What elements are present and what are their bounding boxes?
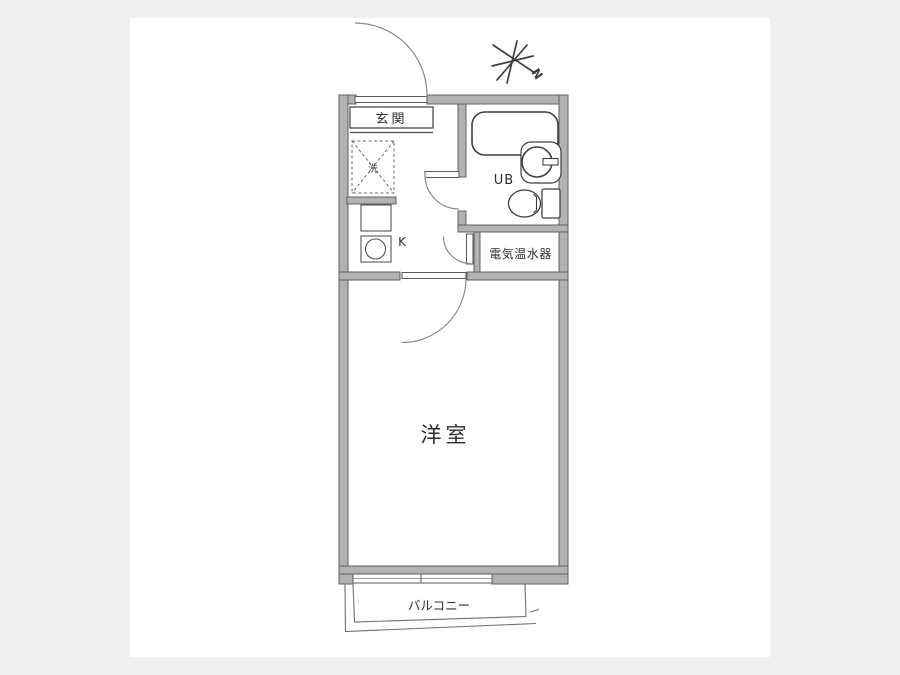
water-heater-label: 電気温水器 (478, 245, 563, 261)
entrance-threshold (355, 97, 427, 103)
wall-room-divider-right (467, 272, 568, 280)
sliding-window (353, 574, 492, 583)
faucet-icon (543, 159, 558, 166)
main-room-door-arc (402, 279, 466, 343)
toilet-bowl-icon (509, 190, 541, 217)
entrance-door-arc (355, 23, 427, 95)
toilet-tank-icon (542, 189, 560, 218)
wall-bottom-corner-right (492, 574, 568, 584)
wall-left (339, 95, 348, 583)
balcony-label: バルコニー (399, 596, 479, 613)
floor-plan-linework (0, 0, 900, 675)
door-swing-arcs (355, 23, 471, 343)
heater-door-leaf (467, 234, 474, 264)
wall-ub-divider-upper (458, 104, 466, 177)
kitchen-label: K (394, 235, 410, 249)
wall-ub-bottom (458, 225, 568, 232)
wall-bottom-corner-left (339, 574, 353, 584)
kitchen-fixtures (361, 205, 391, 262)
ub-door-arc (425, 175, 459, 209)
bath-fixtures (472, 112, 561, 218)
main-room-door-leaf (402, 273, 466, 279)
entrance-label: 玄関 (350, 107, 433, 128)
western-room-label: 洋室 (403, 420, 488, 448)
wall-room-divider-left (339, 272, 400, 280)
kitchen-counter-icon (361, 205, 391, 231)
floor-plan: 玄関 洗 K UB 電気温水器 洋室 バルコニー N (0, 0, 900, 675)
unit-bath-label: UB (490, 172, 518, 188)
ub-door-leaf (425, 172, 459, 178)
wall-top-right (427, 95, 568, 104)
washer-space-label: 洗 (365, 160, 381, 174)
wall-washer-stub (347, 197, 396, 204)
